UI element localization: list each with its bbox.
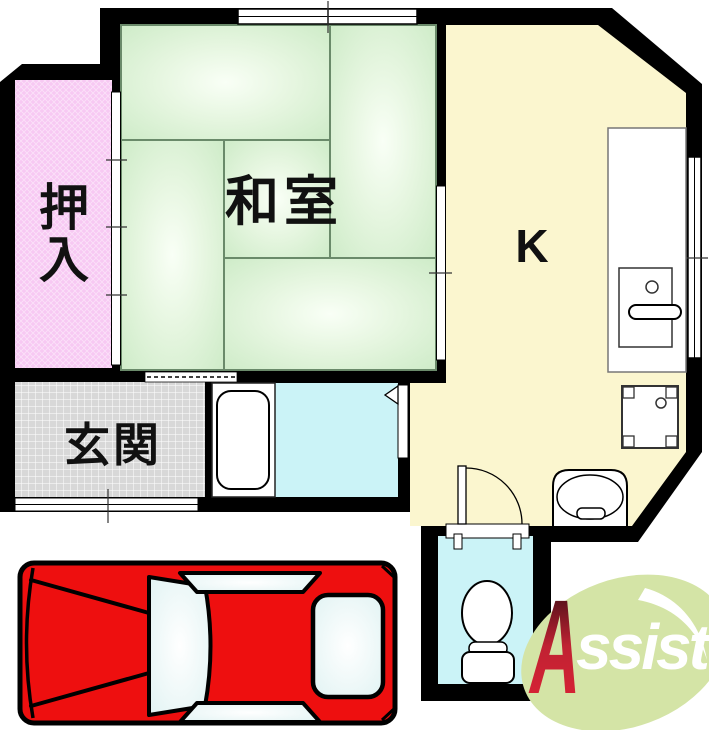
wash-basin-icon: [553, 470, 627, 527]
toilet-icon: [462, 581, 514, 683]
logo-text-rest: ssist: [576, 611, 709, 683]
logo-letter-a: A: [528, 571, 580, 722]
threshold-dashed: [145, 372, 237, 382]
room-label-washitsu: 和室: [225, 172, 343, 232]
tatami-mat: [121, 140, 224, 370]
bathtub-icon: [212, 383, 275, 497]
room-label-genkan: 玄関: [64, 419, 162, 471]
floor-plan-svg: 和室 押 入 玄関 K A ssist: [0, 0, 709, 730]
tatami-mat: [330, 25, 436, 258]
room-label-closet-bottom: 入: [39, 232, 89, 288]
room-label-kitchen: K: [515, 220, 548, 272]
room-label-closet-top: 押: [39, 180, 89, 236]
assist-logo: A ssist: [499, 547, 709, 730]
car-windshield: [149, 577, 211, 715]
car-side-window: [180, 573, 320, 592]
washing-machine-pan-icon: [622, 386, 678, 448]
tatami-mat: [224, 258, 436, 370]
car-side-window: [180, 703, 320, 722]
car-top-view-icon: [20, 563, 396, 723]
floor-plan-page: 和室 押 入 玄関 K A ssist: [0, 0, 709, 730]
kitchen-sink-icon: [619, 268, 681, 347]
kitchen-counter-icon: [608, 128, 686, 372]
car-rear-window: [313, 595, 383, 697]
tatami-mat: [121, 25, 330, 140]
